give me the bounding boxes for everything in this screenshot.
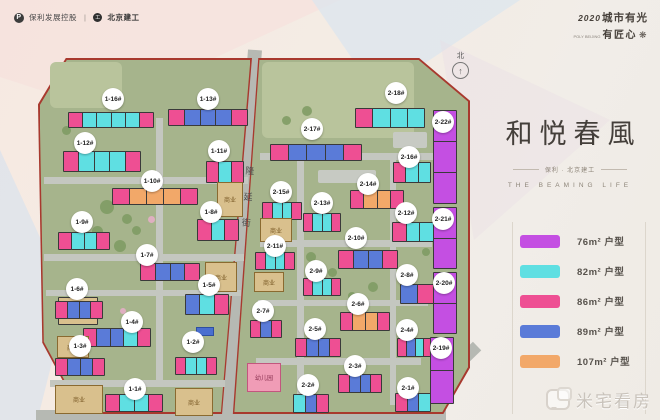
building-segment-cyan (219, 162, 230, 182)
building-segment-purple (434, 304, 456, 334)
building-badge-2-17#: 2-17# (301, 118, 323, 140)
building-segment-orange (353, 313, 364, 330)
tree (132, 226, 141, 235)
building-segment-cyan (85, 233, 97, 249)
building-segment-pink (393, 223, 406, 241)
building-badge-2-15#: 2-15# (270, 181, 292, 203)
building-segment-blue (216, 110, 231, 125)
building-badge-2-8#: 2-8# (396, 264, 418, 286)
building-segment-blue (185, 110, 200, 125)
building-segment-blue (186, 295, 199, 314)
project-title-block: 和悦春風 保利 · 北京建工 THE BEAMING LIFE (480, 112, 660, 189)
building-segment-pink (59, 233, 71, 249)
building-segment-blue (401, 285, 417, 303)
building-segment-blue (307, 339, 317, 356)
tree (328, 268, 337, 277)
building-segment-blue (369, 251, 383, 268)
building-2-10# (338, 250, 398, 269)
building-segment-orange (130, 189, 146, 204)
building-segment-cyan (95, 152, 109, 171)
legend-label: 86m² 户型 (577, 294, 624, 308)
building-2-7# (250, 320, 282, 338)
building-1-3# (55, 358, 105, 376)
tree (122, 214, 132, 224)
building-badge-2-13#: 2-13# (311, 192, 333, 214)
building-segment-cyan (273, 203, 282, 219)
building-segment-cyan (313, 214, 321, 231)
building-badge-2-16#: 2-16# (398, 146, 420, 168)
project-title: 和悦春風 (480, 112, 660, 151)
building-segment-blue (68, 302, 79, 318)
building-segment-cyan (212, 220, 225, 240)
building-segment-blue (407, 339, 415, 356)
building-segment-cyan (419, 163, 430, 182)
building-segment-orange (366, 313, 377, 330)
building-1-4# (83, 328, 151, 347)
building-badge-2-11#: 2-11# (264, 235, 286, 257)
tree (368, 282, 378, 292)
building-badge-2-18#: 2-18# (385, 82, 407, 104)
flower-icon: ❋ (639, 30, 648, 40)
building-segment-orange (378, 191, 390, 208)
building-segment-pink (232, 110, 247, 125)
legend-label: 89m² 户型 (577, 324, 624, 338)
building-segment-pink (225, 220, 238, 240)
building-segment-blue (306, 395, 317, 412)
building-segment-pink (140, 113, 153, 127)
tree (282, 116, 291, 125)
building-segment-pink (339, 251, 353, 268)
unit-type-legend: 76m² 户型 82m² 户型 86m² 户型 89m² 户型 107m² 户型 (520, 234, 630, 368)
building-segment-blue (156, 264, 170, 280)
watermark-text: 米宅看房 (576, 387, 652, 412)
building-badge-2-22#: 2-22# (432, 111, 454, 133)
building-badge-2-4#: 2-4# (396, 319, 418, 341)
building-segment-blue (171, 264, 185, 280)
building-segment-pink (93, 359, 104, 375)
building-segment-purple (434, 239, 456, 269)
building-segment-pink (181, 189, 197, 204)
building-segment-pink (356, 109, 372, 127)
logo-divider: | (84, 13, 86, 22)
kindergarten-building: 幼儿园 (247, 363, 281, 392)
building-segment-blue (81, 359, 92, 375)
building-segment-blue (80, 302, 91, 318)
building-badge-1-6#: 1-6# (66, 278, 88, 300)
legend-item: 76m² 户型 (520, 234, 630, 248)
building-segment-cyan (112, 113, 125, 127)
divider-line (601, 169, 627, 170)
building-2-9# (303, 278, 341, 296)
building-2-12# (392, 222, 434, 242)
north-indicator: 北 ↑ (452, 50, 469, 79)
building-badge-2-12#: 2-12# (395, 202, 417, 224)
building-segment-orange (164, 189, 180, 204)
north-arrow-icon: ↑ (452, 62, 469, 79)
building-segment-cyan (419, 394, 430, 411)
building-2-17# (270, 144, 362, 161)
building-segment-pink (169, 110, 184, 125)
building-segment-pink (285, 253, 294, 269)
building-segment-pink (351, 191, 363, 208)
watermark: 米宅看房 (546, 387, 652, 412)
building-segment-pink (141, 264, 155, 280)
building-segment-pink (371, 375, 381, 392)
legend-item: 89m² 户型 (520, 324, 630, 338)
building-segment-cyan (186, 358, 195, 374)
building-segment-cyan (72, 233, 84, 249)
building-segment-pink (251, 321, 260, 337)
building-segment-pink (378, 313, 389, 330)
building-segment-pink (198, 220, 211, 240)
legend-swatch-89 (520, 325, 560, 338)
building-segment-blue (289, 145, 306, 160)
building-badge-1-16#: 1-16# (102, 88, 124, 110)
building-segment-purple (434, 142, 456, 172)
legend-border-left (512, 222, 513, 414)
building-segment-pink (330, 339, 340, 356)
building-segment-pink (341, 313, 352, 330)
building-segment-pink (304, 214, 312, 231)
building-badge-2-7#: 2-7# (252, 300, 274, 322)
building-segment-pink (56, 302, 67, 318)
slogan-line1: 城市有光 (602, 12, 648, 24)
chat-bubble-icon (546, 389, 570, 410)
building-segment-cyan (407, 223, 420, 241)
building-segment-blue (68, 359, 79, 375)
bjce-logo-icon: 工 (93, 13, 102, 22)
building-segment-pink (106, 395, 119, 411)
building-segment-cyan (373, 109, 389, 127)
building-segment-blue (307, 145, 324, 160)
building-segment-pink (271, 145, 288, 160)
building-segment-pink (296, 339, 306, 356)
building-1-11# (206, 161, 244, 183)
building-segment-cyan (323, 214, 331, 231)
slogan-year: 2020 (578, 13, 601, 23)
building-1-12# (63, 151, 141, 172)
building-badge-1-11#: 1-11# (208, 140, 230, 162)
slogan-subtext: POLY BEIJING (573, 34, 600, 39)
building-segment-cyan (323, 279, 331, 295)
building-2-13# (303, 213, 341, 232)
building-segment-pink (176, 358, 185, 374)
building-badge-2-14#: 2-14# (357, 173, 379, 195)
building-segment-pink (149, 395, 162, 411)
poster: P 保利发展控股 | 工 北京建工 2020城市有光 POLY BEIJING有… (0, 0, 660, 420)
building-segment-blue (111, 329, 123, 346)
legend-swatch-82 (520, 265, 560, 278)
building-badge-1-2#: 1-2# (182, 331, 204, 353)
building-segment-blue (350, 375, 360, 392)
building-segment-pink (91, 302, 102, 318)
brand-logos: P 保利发展控股 | 工 北京建工 (14, 12, 139, 23)
building-badge-2-2#: 2-2# (297, 374, 319, 396)
building-segment-cyan (391, 109, 407, 127)
building-segment-purple (431, 371, 453, 403)
commercial-building: 商业 (175, 388, 213, 416)
building-segment-pink (126, 152, 140, 171)
project-subtitle: 保利 · 北京建工 (545, 165, 595, 174)
tree (302, 106, 312, 116)
building-segment-pink (69, 113, 82, 127)
bjce-logo-text: 北京建工 (107, 12, 139, 23)
building-segment-pink (317, 395, 328, 412)
commercial-building: 商业 (254, 272, 284, 292)
building-segment-purple (434, 173, 456, 203)
poly-logo-text: 保利发展控股 (29, 12, 77, 23)
building-segment-pink (332, 214, 340, 231)
building-badge-2-3#: 2-3# (344, 355, 366, 377)
building-segment-cyan (83, 113, 96, 127)
building-1-13# (168, 109, 248, 126)
building-2-2# (293, 394, 329, 413)
building-segment-blue (354, 251, 368, 268)
legend-border-right (645, 222, 646, 414)
building-segment-cyan (197, 358, 206, 374)
building-segment-pink (232, 162, 243, 182)
building-segment-cyan (110, 152, 124, 171)
building-badge-1-3#: 1-3# (69, 335, 91, 357)
building-segment-cyan (294, 395, 305, 412)
building-badge-2-6#: 2-6# (347, 293, 369, 315)
building-segment-pink (138, 329, 150, 346)
building-segment-pink (344, 145, 361, 160)
building-badge-1-7#: 1-7# (136, 244, 158, 266)
building-segment-cyan (97, 113, 110, 127)
building-segment-blue (261, 321, 270, 337)
building-segment-pink (398, 339, 406, 356)
building-segment-blue (361, 375, 371, 392)
building-segment-pink (332, 279, 340, 295)
building-segment-pink (64, 152, 78, 171)
building-1-16# (68, 112, 154, 128)
building-segment-pink (56, 359, 67, 375)
building-2-6# (340, 312, 390, 331)
building-segment-blue (326, 145, 343, 160)
building-segment-pink (339, 375, 349, 392)
building-badge-1-12#: 1-12# (74, 132, 96, 154)
building-segment-pink (292, 203, 301, 219)
building-2-3# (338, 374, 382, 393)
building-badge-1-8#: 1-8# (200, 201, 222, 223)
building-segment-cyan (420, 223, 433, 241)
building-segment-pink (207, 358, 216, 374)
building-2-18# (355, 108, 425, 128)
building-badge-1-1#: 1-1# (124, 378, 146, 400)
building-segment-pink (263, 203, 272, 219)
project-subtitle-en: THE BEAMING LIFE (480, 182, 660, 189)
building-segment-pink (272, 321, 281, 337)
building-2-5# (295, 338, 341, 357)
legend-item: 82m² 户型 (520, 264, 630, 278)
building-badge-2-1#: 2-1# (397, 377, 419, 399)
building-segment-cyan (200, 295, 213, 314)
tree (422, 248, 430, 256)
building-1-5# (185, 294, 229, 315)
building-segment-pink (113, 189, 129, 204)
building-segment-blue (201, 110, 216, 125)
legend-label: 82m² 户型 (577, 264, 624, 278)
building-segment-pink (418, 285, 434, 303)
building-1-8# (197, 219, 239, 241)
building-segment-cyan (283, 203, 292, 219)
building-segment-pink (207, 162, 218, 182)
building-segment-cyan (408, 109, 424, 127)
building-badge-1-5#: 1-5# (198, 274, 220, 296)
building-2-8# (400, 284, 434, 304)
building-badge-1-10#: 1-10# (141, 170, 163, 192)
north-label: 北 (457, 50, 465, 61)
legend-swatch-76 (520, 235, 560, 248)
building-2-4# (397, 338, 433, 357)
campaign-slogan: 2020城市有光 POLY BEIJING有匠心❋ (573, 10, 648, 41)
building-segment-pink (215, 295, 228, 314)
legend-label: 76m² 户型 (577, 234, 624, 248)
divider-line (513, 169, 539, 170)
building-segment-cyan (126, 113, 139, 127)
slogan-line2: 有匠心 (602, 30, 637, 41)
building-badge-2-10#: 2-10# (345, 227, 367, 249)
building-1-9# (58, 232, 110, 250)
building-badge-2-5#: 2-5# (304, 318, 326, 340)
legend-swatch-86 (520, 295, 560, 308)
building-badge-2-21#: 2-21# (432, 208, 454, 230)
building-segment-cyan (416, 339, 424, 356)
building-1-2# (175, 357, 217, 375)
building-badge-1-4#: 1-4# (121, 311, 143, 333)
tree (114, 240, 126, 252)
building-badge-1-13#: 1-13# (197, 88, 219, 110)
building-badge-2-19#: 2-19# (430, 337, 452, 359)
building-badge-2-9#: 2-9# (305, 260, 327, 282)
legend-item: 107m² 户型 (520, 354, 630, 368)
building-segment-pink (97, 233, 109, 249)
commercial-building: 商业 (55, 385, 103, 414)
building-badge-2-20#: 2-20# (433, 272, 455, 294)
building-segment-pink (185, 264, 199, 280)
legend-swatch-107 (520, 355, 560, 368)
building-segment-cyan (79, 152, 93, 171)
building-segment-pink (304, 279, 312, 295)
legend-item: 86m² 户型 (520, 294, 630, 308)
legend-label: 107m² 户型 (577, 354, 630, 368)
building-block (55, 301, 103, 319)
building-segment-pink (383, 251, 397, 268)
building-segment-pink (256, 253, 265, 269)
building-segment-blue (97, 329, 109, 346)
building-badge-1-9#: 1-9# (71, 211, 93, 233)
building-segment-blue (319, 339, 329, 356)
poly-logo-icon: P (14, 13, 24, 23)
flower-bed (148, 216, 155, 223)
